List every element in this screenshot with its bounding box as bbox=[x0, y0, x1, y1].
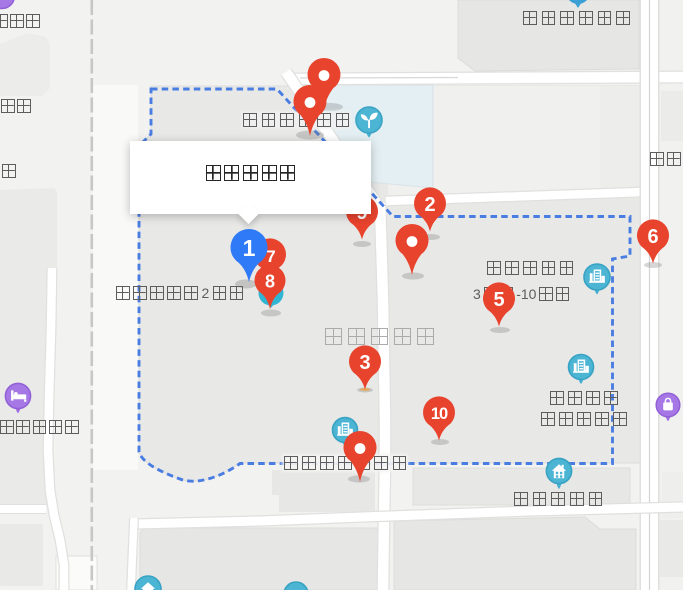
svg-text:6: 6 bbox=[647, 226, 658, 248]
svg-text:1: 1 bbox=[243, 235, 256, 261]
svg-text:5: 5 bbox=[493, 289, 504, 311]
svg-text:3: 3 bbox=[359, 352, 370, 374]
svg-text:7: 7 bbox=[266, 247, 275, 266]
svg-text:8: 8 bbox=[265, 272, 275, 292]
svg-text:10: 10 bbox=[431, 405, 448, 423]
svg-text:2: 2 bbox=[424, 194, 435, 216]
